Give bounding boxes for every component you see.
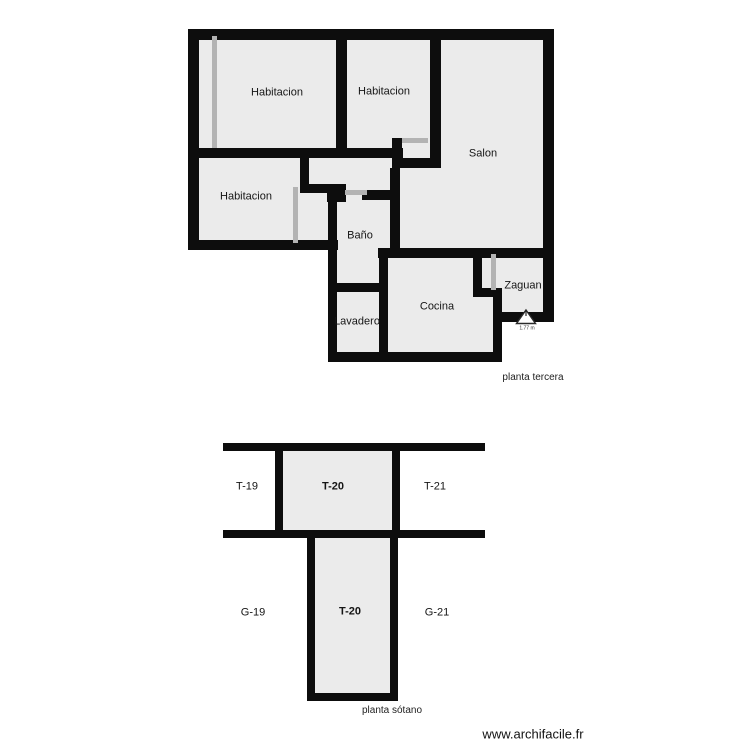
- parcel-label-t21: T-21: [424, 482, 446, 493]
- parcel-label-t20-bottom: T-20: [339, 607, 361, 618]
- parcel-label-g21: G-21: [425, 608, 449, 619]
- wall-sotano-mid: [223, 530, 485, 538]
- wall-t20-lower-bottom: [307, 693, 398, 701]
- wall-sotano-top: [223, 443, 485, 451]
- wall-t20-left: [275, 443, 283, 538]
- parcel-label-g19: G-19: [241, 608, 265, 619]
- wall-t20-right: [392, 443, 400, 538]
- caption-planta-sotano: planta sótano: [362, 706, 422, 716]
- wall-t20-lower-left: [307, 538, 315, 701]
- website-watermark: www.archifacile.fr: [482, 727, 583, 742]
- plan-planta-sotano: T-19 T-20 T-21 G-19 T-20 G-21 planta sót…: [0, 0, 750, 750]
- parcel-label-t19: T-19: [236, 482, 258, 493]
- parcel-label-t20-top: T-20: [322, 482, 344, 493]
- wall-t20-lower-right: [390, 538, 398, 701]
- floorplan-page: { "colors": { "wall": "#0d0d0d", "room_f…: [0, 0, 750, 750]
